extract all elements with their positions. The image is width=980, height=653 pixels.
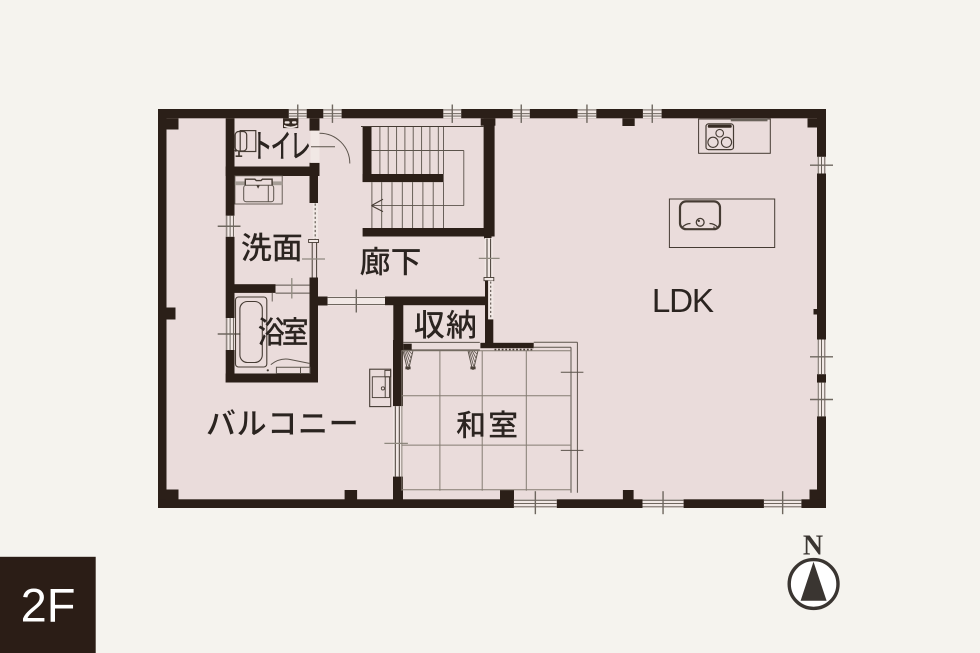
svg-text:N: N	[803, 531, 823, 562]
svg-text:2F: 2F	[21, 578, 76, 631]
svg-text:LDK: LDK	[652, 283, 714, 320]
